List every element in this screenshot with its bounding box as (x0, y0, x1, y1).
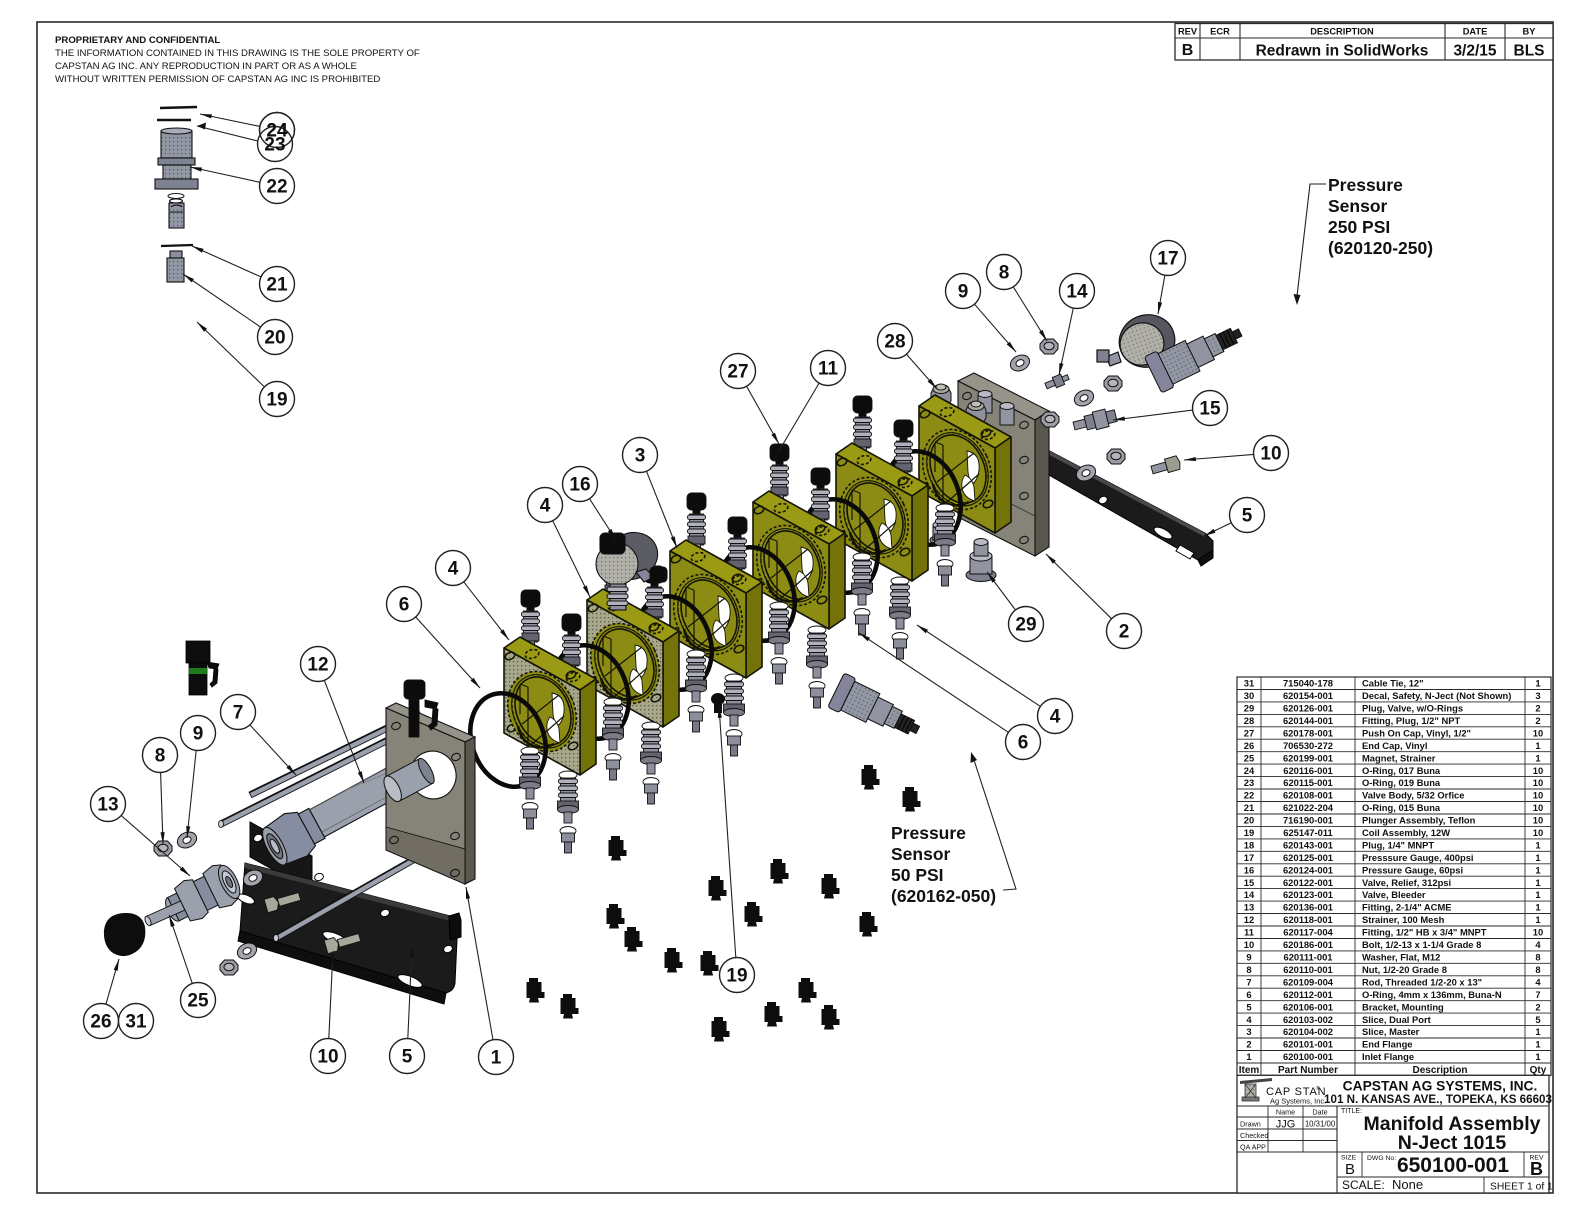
svg-text:1: 1 (1246, 1051, 1251, 1062)
svg-text:WITHOUT WRITTEN PERMISSION OF: WITHOUT WRITTEN PERMISSION OF CAPSTAN AG… (55, 74, 380, 85)
svg-text:9: 9 (1246, 952, 1251, 963)
svg-text:Nut, 1/2-20 Grade 8: Nut, 1/2-20 Grade 8 (1362, 964, 1447, 975)
svg-text:10: 10 (1260, 444, 1281, 465)
svg-text:620115-001: 620115-001 (1283, 777, 1333, 788)
svg-text:Sensor: Sensor (1328, 196, 1388, 216)
svg-text:8: 8 (1535, 964, 1540, 975)
svg-text:ECR: ECR (1210, 27, 1230, 37)
svg-text:5: 5 (402, 1047, 413, 1068)
svg-text:620126-001: 620126-001 (1283, 703, 1333, 714)
svg-text:Part Number: Part Number (1278, 1065, 1338, 1076)
svg-text:Checked: Checked (1240, 1131, 1268, 1140)
svg-text:26: 26 (90, 1012, 111, 1033)
svg-text:18: 18 (1244, 840, 1254, 851)
svg-text:2: 2 (1246, 1039, 1251, 1050)
svg-text:Decal, Safety, N-Ject (Not Sho: Decal, Safety, N-Ject (Not Shown) (1362, 690, 1511, 701)
svg-text:Bracket, Mounting: Bracket, Mounting (1362, 1001, 1444, 1012)
svg-text:End Flange: End Flange (1362, 1039, 1413, 1050)
svg-text:DWG No:: DWG No: (1367, 1155, 1396, 1162)
svg-text:1: 1 (491, 1048, 502, 1069)
svg-text:Plug, 1/4" MNPT: Plug, 1/4" MNPT (1362, 840, 1434, 851)
svg-text:10: 10 (1533, 927, 1543, 938)
svg-text:1: 1 (1535, 1039, 1540, 1050)
svg-text:17: 17 (1157, 249, 1178, 270)
svg-text:Cable Tie, 12": Cable Tie, 12" (1362, 678, 1424, 689)
svg-text:716190-001: 716190-001 (1283, 815, 1333, 826)
svg-text:1: 1 (1535, 914, 1540, 925)
svg-text:27: 27 (727, 362, 748, 383)
svg-text:2: 2 (1535, 1001, 1540, 1012)
svg-text:24: 24 (1244, 765, 1255, 776)
svg-text:1: 1 (1535, 1026, 1540, 1037)
svg-text:Name: Name (1276, 1108, 1295, 1117)
svg-text:Inlet Flange: Inlet Flange (1362, 1051, 1414, 1062)
svg-text:23: 23 (1244, 777, 1254, 788)
svg-text:None: None (1392, 1177, 1423, 1192)
svg-text:27: 27 (1244, 727, 1254, 738)
svg-text:101 N. KANSAS AVE., TOPEKA, KS: 101 N. KANSAS AVE., TOPEKA, KS 66603 (1324, 1093, 1552, 1106)
svg-text:6: 6 (399, 595, 410, 616)
svg-text:25: 25 (1244, 752, 1254, 763)
svg-text:706530-272: 706530-272 (1283, 740, 1333, 751)
svg-text:620116-001: 620116-001 (1283, 765, 1333, 776)
svg-text:620178-001: 620178-001 (1283, 727, 1333, 738)
svg-text:CAPSTAN AG SYSTEMS, INC.: CAPSTAN AG SYSTEMS, INC. (1343, 1079, 1538, 1094)
svg-text:1: 1 (1535, 902, 1540, 913)
svg-text:O-Ring, 019 Buna: O-Ring, 019 Buna (1362, 777, 1441, 788)
svg-text:Sensor: Sensor (891, 844, 951, 864)
svg-text:1: 1 (1535, 840, 1540, 851)
svg-text:620123-001: 620123-001 (1283, 889, 1333, 900)
svg-text:620103-002: 620103-002 (1283, 1014, 1333, 1025)
svg-text:Drawn: Drawn (1240, 1120, 1261, 1129)
svg-text:(620162-050): (620162-050) (891, 886, 996, 906)
svg-text:21: 21 (1244, 802, 1254, 813)
svg-text:12: 12 (1244, 914, 1254, 925)
svg-text:Redrawn in SolidWorks: Redrawn in SolidWorks (1256, 43, 1429, 60)
svg-text:O-Ring, 4mm x 136mm, Buna-N: O-Ring, 4mm x 136mm, Buna-N (1362, 989, 1502, 1000)
svg-text:CAPSTAN AG INC. ANY REPRODUC: CAPSTAN AG INC. ANY REPRODUCTION IN PART… (55, 61, 357, 72)
svg-text:620110-001: 620110-001 (1283, 964, 1333, 975)
svg-text:B: B (1345, 1161, 1355, 1178)
svg-text:Date: Date (1312, 1108, 1327, 1117)
svg-text:4: 4 (540, 496, 551, 517)
svg-text:15: 15 (1244, 877, 1254, 888)
svg-text:620109-004: 620109-004 (1283, 976, 1334, 987)
svg-text:(620120-250): (620120-250) (1328, 238, 1433, 258)
svg-text:2: 2 (1535, 715, 1540, 726)
svg-text:1: 1 (1535, 752, 1540, 763)
svg-text:Coil Assembly, 12W: Coil Assembly, 12W (1362, 827, 1450, 838)
svg-text:10: 10 (1533, 790, 1543, 801)
svg-text:16: 16 (569, 475, 590, 496)
svg-text:9: 9 (958, 282, 969, 303)
svg-text:PROPRIETARY AND CONFIDENTIAL: PROPRIETARY AND CONFIDENTIAL (55, 35, 220, 46)
svg-text:17: 17 (1244, 852, 1254, 863)
svg-text:JJG: JJG (1276, 1119, 1296, 1131)
svg-text:28: 28 (1244, 715, 1254, 726)
svg-text:23: 23 (264, 135, 285, 156)
svg-text:11: 11 (1244, 927, 1254, 938)
svg-text:650100-001: 650100-001 (1397, 1154, 1509, 1177)
svg-text:REV: REV (1178, 27, 1198, 37)
svg-text:4: 4 (1246, 1014, 1252, 1025)
svg-text:20: 20 (1244, 815, 1254, 826)
svg-text:620144-001: 620144-001 (1283, 715, 1333, 726)
svg-text:620124-001: 620124-001 (1283, 864, 1333, 875)
svg-text:1: 1 (1535, 864, 1540, 875)
svg-text:7: 7 (1246, 976, 1251, 987)
svg-text:1: 1 (1535, 889, 1540, 900)
svg-text:Ag Systems, Inc.: Ag Systems, Inc. (1270, 1097, 1326, 1106)
svg-text:3: 3 (1246, 1026, 1251, 1037)
svg-text:10: 10 (1533, 802, 1543, 813)
svg-text:3: 3 (1535, 690, 1540, 701)
svg-text:13: 13 (1244, 902, 1254, 913)
svg-text:3/2/15: 3/2/15 (1453, 43, 1496, 60)
svg-text:19: 19 (1244, 827, 1254, 838)
svg-text:29: 29 (1244, 703, 1254, 714)
svg-text:Item: Item (1239, 1065, 1260, 1076)
svg-text:End Cap, Vinyl: End Cap, Vinyl (1362, 740, 1427, 751)
svg-text:Valve, Bleeder: Valve, Bleeder (1362, 889, 1426, 900)
svg-text:Description: Description (1412, 1065, 1467, 1076)
svg-text:10: 10 (1533, 765, 1543, 776)
svg-text:14: 14 (1244, 889, 1255, 900)
svg-text:B: B (1530, 1159, 1543, 1179)
svg-text:29: 29 (1015, 615, 1036, 636)
svg-text:N-Ject 1015: N-Ject 1015 (1398, 1132, 1507, 1154)
svg-text:15: 15 (1199, 399, 1221, 420)
svg-text:6: 6 (1246, 989, 1251, 1000)
svg-text:DATE: DATE (1463, 27, 1488, 37)
svg-text:620112-001: 620112-001 (1283, 989, 1333, 1000)
svg-text:7: 7 (1535, 989, 1540, 1000)
svg-text:620101-001: 620101-001 (1283, 1039, 1333, 1050)
svg-text:4: 4 (448, 559, 459, 580)
svg-text:8: 8 (999, 263, 1010, 284)
svg-text:620136-001: 620136-001 (1283, 902, 1333, 913)
svg-text:1: 1 (1535, 1051, 1540, 1062)
svg-text:Washer, Flat, M12: Washer, Flat, M12 (1362, 952, 1440, 963)
svg-text:620111-001: 620111-001 (1283, 952, 1332, 963)
svg-text:10/31/00: 10/31/00 (1305, 1120, 1336, 1129)
svg-text:621022-204: 621022-204 (1283, 802, 1334, 813)
svg-text:B: B (1182, 42, 1194, 59)
svg-text:Presssure Gauge, 400psi: Presssure Gauge, 400psi (1362, 852, 1474, 863)
svg-text:10: 10 (1533, 815, 1543, 826)
svg-text:Pressure: Pressure (891, 823, 966, 843)
svg-text:10: 10 (1533, 777, 1543, 788)
svg-text:620118-001: 620118-001 (1283, 914, 1333, 925)
svg-text:Qty: Qty (1530, 1065, 1547, 1076)
svg-text:5: 5 (1535, 1014, 1540, 1025)
svg-text:Pressure Gauge, 60psi: Pressure Gauge, 60psi (1362, 864, 1463, 875)
svg-text:2: 2 (1535, 703, 1540, 714)
svg-text:2: 2 (1119, 622, 1130, 643)
svg-text:1: 1 (1535, 740, 1540, 751)
svg-text:5: 5 (1242, 506, 1253, 527)
svg-text:Fitting, Plug, 1/2" NPT: Fitting, Plug, 1/2" NPT (1362, 715, 1460, 726)
svg-text:30: 30 (1244, 690, 1254, 701)
svg-text:19: 19 (726, 966, 747, 987)
svg-text:QA APP: QA APP (1240, 1143, 1266, 1152)
svg-text:4: 4 (1535, 939, 1541, 950)
svg-text:10: 10 (317, 1047, 338, 1068)
svg-text:4: 4 (1050, 707, 1061, 728)
svg-text:625147-011: 625147-011 (1283, 827, 1333, 838)
svg-text:10: 10 (1244, 939, 1254, 950)
svg-text:3: 3 (635, 446, 646, 467)
svg-text:12: 12 (307, 655, 328, 676)
svg-text:THE INFORMATION CONTAINED IN T: THE INFORMATION CONTAINED IN THIS DRAWIN… (55, 48, 420, 59)
svg-text:22: 22 (1244, 790, 1254, 801)
svg-text:620104-002: 620104-002 (1283, 1026, 1333, 1037)
svg-text:Plug, Valve, w/O-Rings: Plug, Valve, w/O-Rings (1362, 703, 1463, 714)
svg-text:Valve, Relief, 312psi: Valve, Relief, 312psi (1362, 877, 1451, 888)
svg-text:620154-001: 620154-001 (1283, 690, 1333, 701)
svg-text:10: 10 (1533, 827, 1543, 838)
svg-text:8: 8 (155, 746, 166, 767)
svg-text:620143-001: 620143-001 (1283, 840, 1333, 851)
svg-text:620122-001: 620122-001 (1283, 877, 1333, 888)
svg-text:6: 6 (1018, 733, 1029, 754)
svg-text:O-Ring, 015 Buna: O-Ring, 015 Buna (1362, 802, 1441, 813)
svg-text:®: ® (1316, 1085, 1320, 1092)
svg-text:250 PSI: 250 PSI (1328, 217, 1390, 237)
svg-text:4: 4 (1535, 976, 1541, 987)
svg-text:620108-001: 620108-001 (1283, 790, 1333, 801)
svg-text:Valve Body, 5/32 Orfice: Valve Body, 5/32 Orfice (1362, 790, 1464, 801)
svg-text:8: 8 (1535, 952, 1540, 963)
svg-text:19: 19 (266, 390, 287, 411)
svg-text:620186-001: 620186-001 (1283, 939, 1333, 950)
svg-text:14: 14 (1066, 282, 1088, 303)
svg-text:Rod, Threaded 1/2-20 x 13": Rod, Threaded 1/2-20 x 13" (1362, 976, 1482, 987)
svg-text:31: 31 (1244, 678, 1254, 689)
svg-text:21: 21 (266, 275, 288, 296)
svg-text:10: 10 (1533, 727, 1543, 738)
svg-text:25: 25 (187, 991, 209, 1012)
svg-text:Push On Cap, Vinyl, 1/2": Push On Cap, Vinyl, 1/2" (1362, 727, 1471, 738)
svg-text:Plunger Assembly, Teflon: Plunger Assembly, Teflon (1362, 815, 1476, 826)
svg-text:9: 9 (193, 724, 204, 745)
svg-text:1: 1 (1535, 877, 1540, 888)
svg-text:20: 20 (264, 328, 285, 349)
svg-text:Strainer, 100 Mesh: Strainer, 100 Mesh (1362, 914, 1445, 925)
svg-text:SCALE:: SCALE: (1342, 1178, 1385, 1192)
svg-text:Bolt, 1/2-13 x 1-1/4 Grade 8: Bolt, 1/2-13 x 1-1/4 Grade 8 (1362, 939, 1481, 950)
svg-text:620100-001: 620100-001 (1283, 1051, 1333, 1062)
svg-text:BY: BY (1523, 27, 1537, 37)
svg-text:28: 28 (884, 332, 905, 353)
svg-text:5: 5 (1246, 1001, 1251, 1012)
svg-text:620117-004: 620117-004 (1283, 927, 1333, 938)
svg-text:BLS: BLS (1514, 43, 1545, 60)
svg-text:Fitting, 2-1/4" ACME: Fitting, 2-1/4" ACME (1362, 902, 1452, 913)
svg-text:22: 22 (266, 177, 287, 198)
svg-text:DESCRIPTION: DESCRIPTION (1310, 27, 1374, 37)
svg-text:7: 7 (233, 703, 244, 724)
svg-text:SHEET 1 of 1: SHEET 1 of 1 (1490, 1182, 1553, 1193)
svg-text:Slice, Master: Slice, Master (1362, 1026, 1420, 1037)
svg-text:1: 1 (1535, 852, 1540, 863)
svg-text:TITLE:: TITLE: (1341, 1108, 1362, 1115)
svg-text:620199-001: 620199-001 (1283, 752, 1333, 763)
svg-text:8: 8 (1246, 964, 1251, 975)
svg-text:1: 1 (1535, 678, 1540, 689)
svg-text:Fitting, 1/2" HB x 3/4" MNPT: Fitting, 1/2" HB x 3/4" MNPT (1362, 927, 1487, 938)
svg-text:16: 16 (1244, 864, 1254, 875)
svg-text:13: 13 (97, 795, 118, 816)
svg-text:Magnet, Strainer: Magnet, Strainer (1362, 752, 1436, 763)
svg-text:31: 31 (125, 1012, 147, 1033)
svg-text:620106-001: 620106-001 (1283, 1001, 1333, 1012)
svg-text:715040-178: 715040-178 (1283, 678, 1333, 689)
svg-text:11: 11 (818, 359, 839, 380)
svg-text:Pressure: Pressure (1328, 175, 1403, 195)
svg-text:Slice, Dual Port: Slice, Dual Port (1362, 1014, 1431, 1025)
svg-text:50 PSI: 50 PSI (891, 865, 944, 885)
svg-text:26: 26 (1244, 740, 1254, 751)
svg-text:620125-001: 620125-001 (1283, 852, 1333, 863)
svg-text:O-Ring, 017 Buna: O-Ring, 017 Buna (1362, 765, 1441, 776)
